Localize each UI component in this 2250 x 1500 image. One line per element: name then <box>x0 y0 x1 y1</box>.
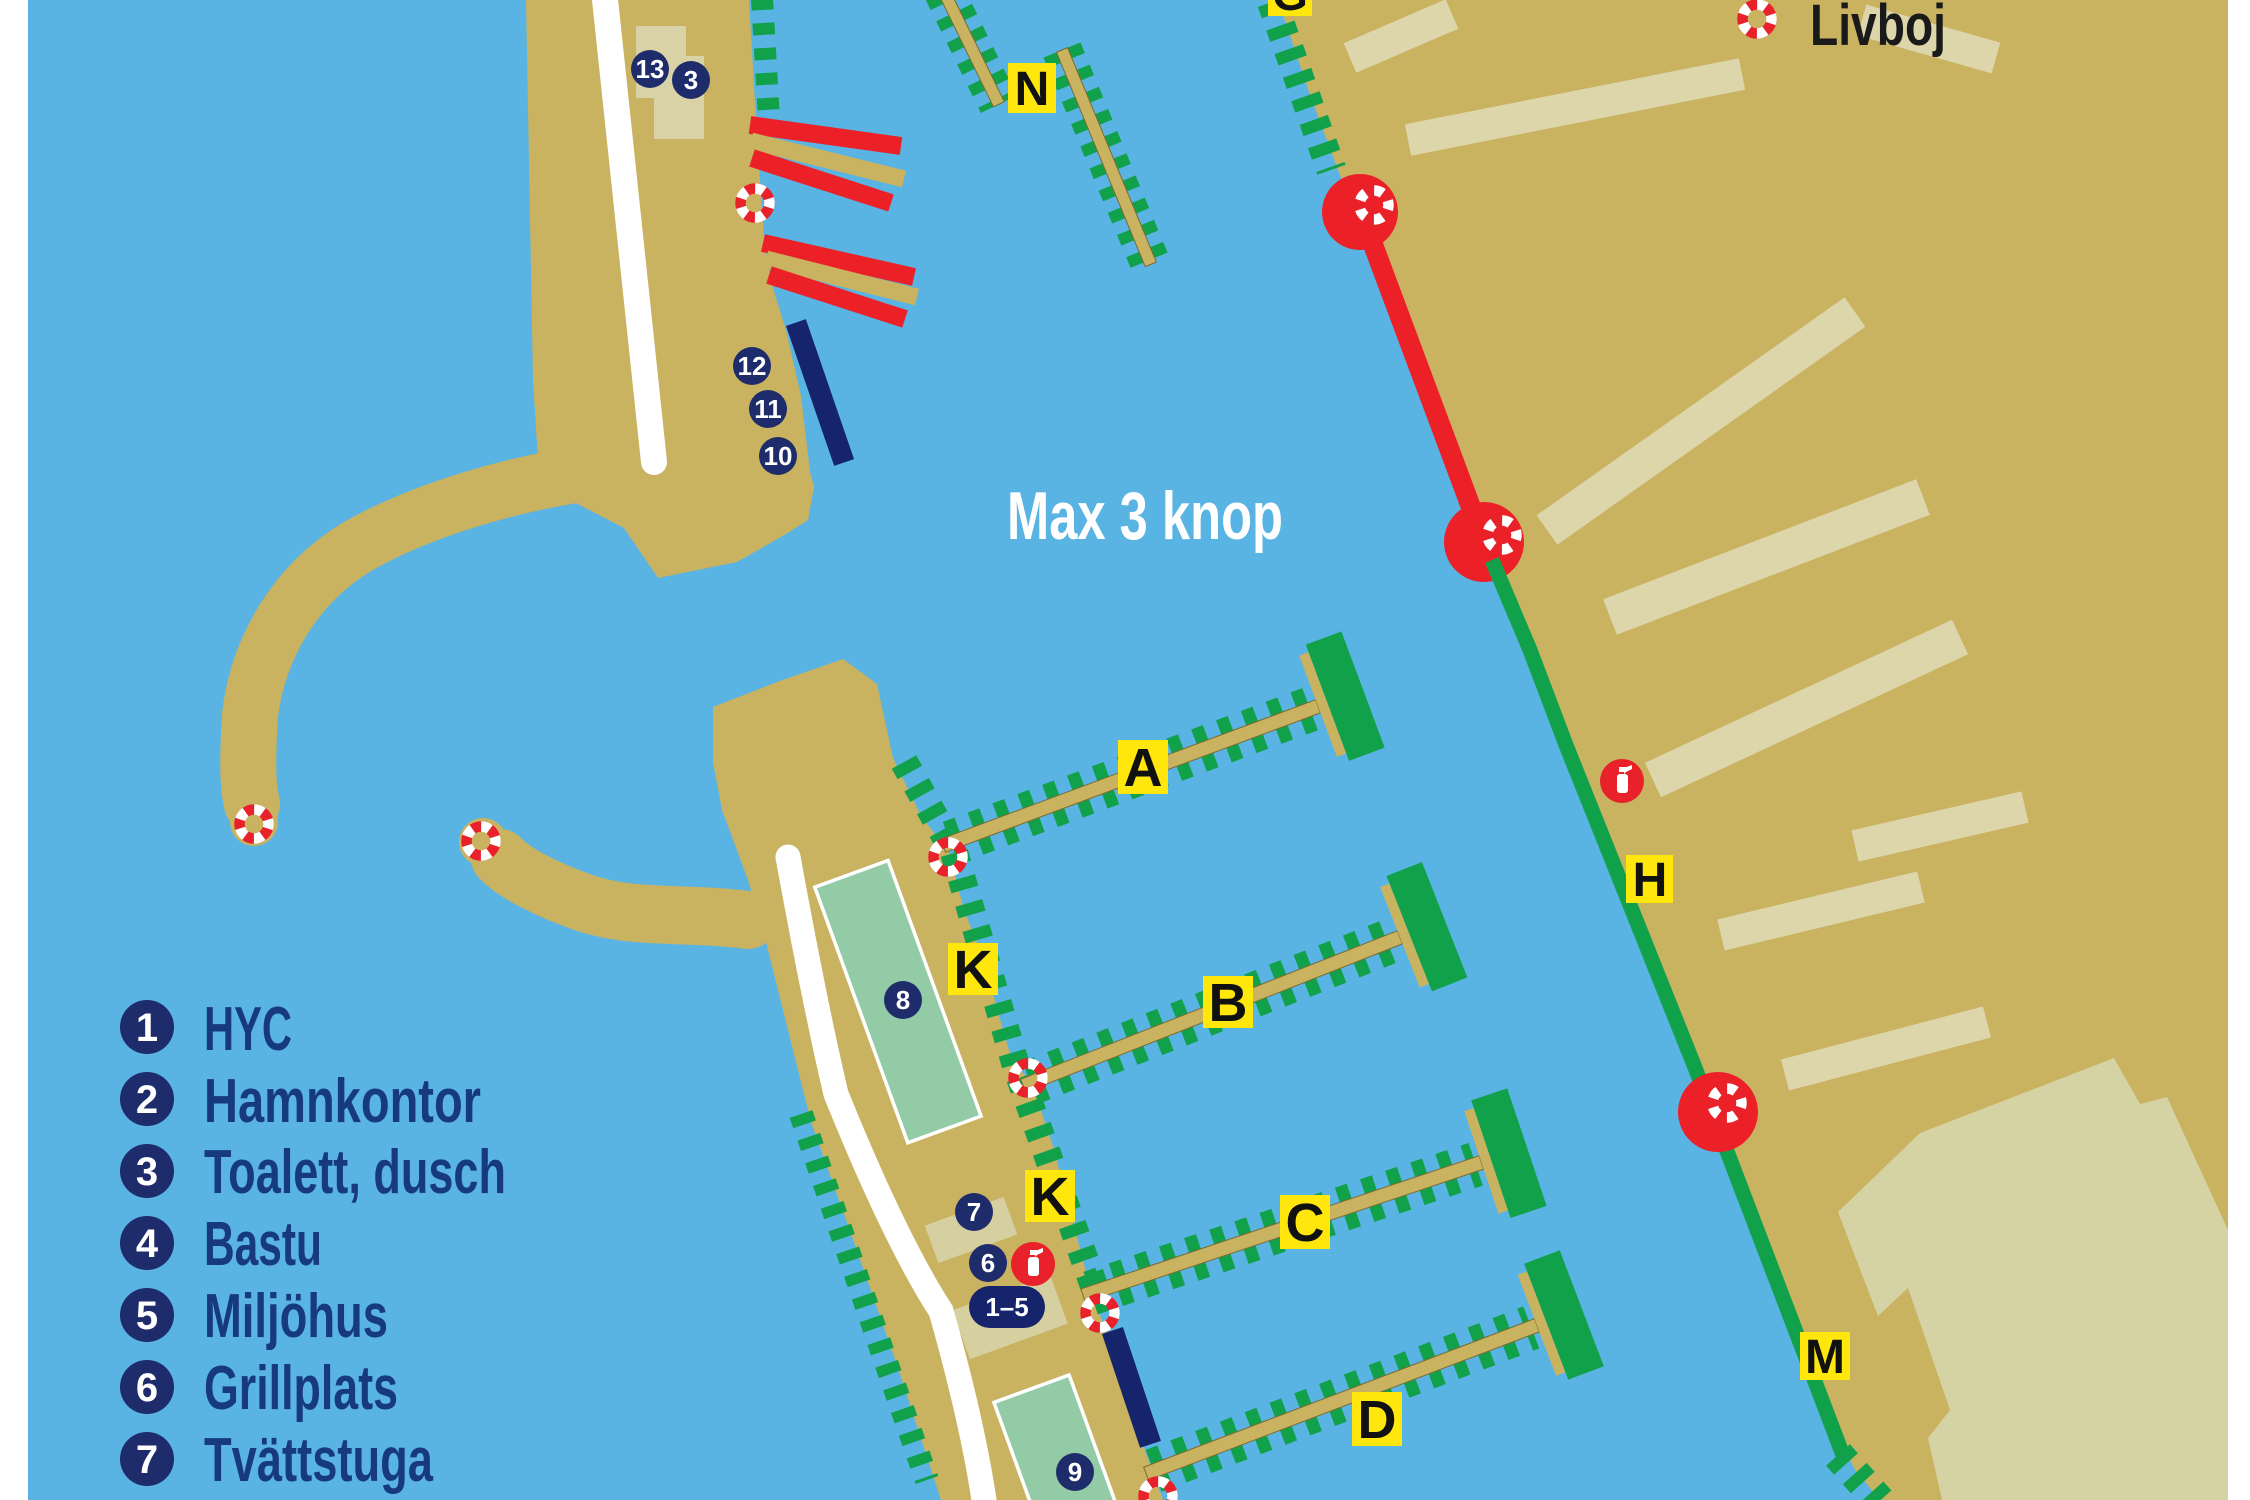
svg-text:6: 6 <box>136 1366 158 1410</box>
svg-text:1: 1 <box>136 1006 158 1050</box>
svg-text:2: 2 <box>136 1078 158 1122</box>
svg-text:3: 3 <box>136 1150 158 1194</box>
svg-text:Hamnkontor: Hamnkontor <box>204 1067 481 1136</box>
svg-text:4: 4 <box>136 1222 159 1266</box>
svg-text:13: 13 <box>636 54 665 84</box>
svg-text:D: D <box>1358 1390 1397 1450</box>
svg-text:Bastu: Bastu <box>204 1210 322 1279</box>
svg-text:9: 9 <box>1068 1457 1082 1487</box>
svg-text:B: B <box>1209 973 1248 1033</box>
svg-text:H: H <box>1633 854 1668 907</box>
svg-text:11: 11 <box>754 394 782 424</box>
svg-text:Miljöhus: Miljöhus <box>204 1282 388 1351</box>
svg-text:Grillplats: Grillplats <box>204 1354 398 1423</box>
svg-text:HYC: HYC <box>204 995 292 1064</box>
svg-text:8: 8 <box>896 985 910 1015</box>
svg-text:A: A <box>1124 738 1163 798</box>
svg-text:G: G <box>1272 0 1308 20</box>
svg-text:Tvättstuga: Tvättstuga <box>204 1426 433 1495</box>
svg-text:Toalett, dusch: Toalett, dusch <box>204 1138 506 1207</box>
svg-text:7: 7 <box>967 1197 981 1227</box>
svg-text:K: K <box>1031 1167 1070 1227</box>
svg-text:Livboj: Livboj <box>1810 0 1946 58</box>
svg-text:3: 3 <box>684 65 698 95</box>
svg-text:K: K <box>954 940 993 1000</box>
svg-text:Max 3 knop: Max 3 knop <box>1007 478 1283 554</box>
svg-text:10: 10 <box>764 441 793 471</box>
svg-text:5: 5 <box>136 1294 158 1338</box>
svg-text:12: 12 <box>738 351 767 381</box>
svg-text:C: C <box>1286 1193 1325 1253</box>
svg-text:M: M <box>1805 1331 1845 1384</box>
svg-text:7: 7 <box>136 1438 158 1482</box>
svg-text:1–5: 1–5 <box>985 1292 1028 1322</box>
svg-text:6: 6 <box>981 1248 995 1278</box>
svg-text:N: N <box>1015 63 1050 116</box>
